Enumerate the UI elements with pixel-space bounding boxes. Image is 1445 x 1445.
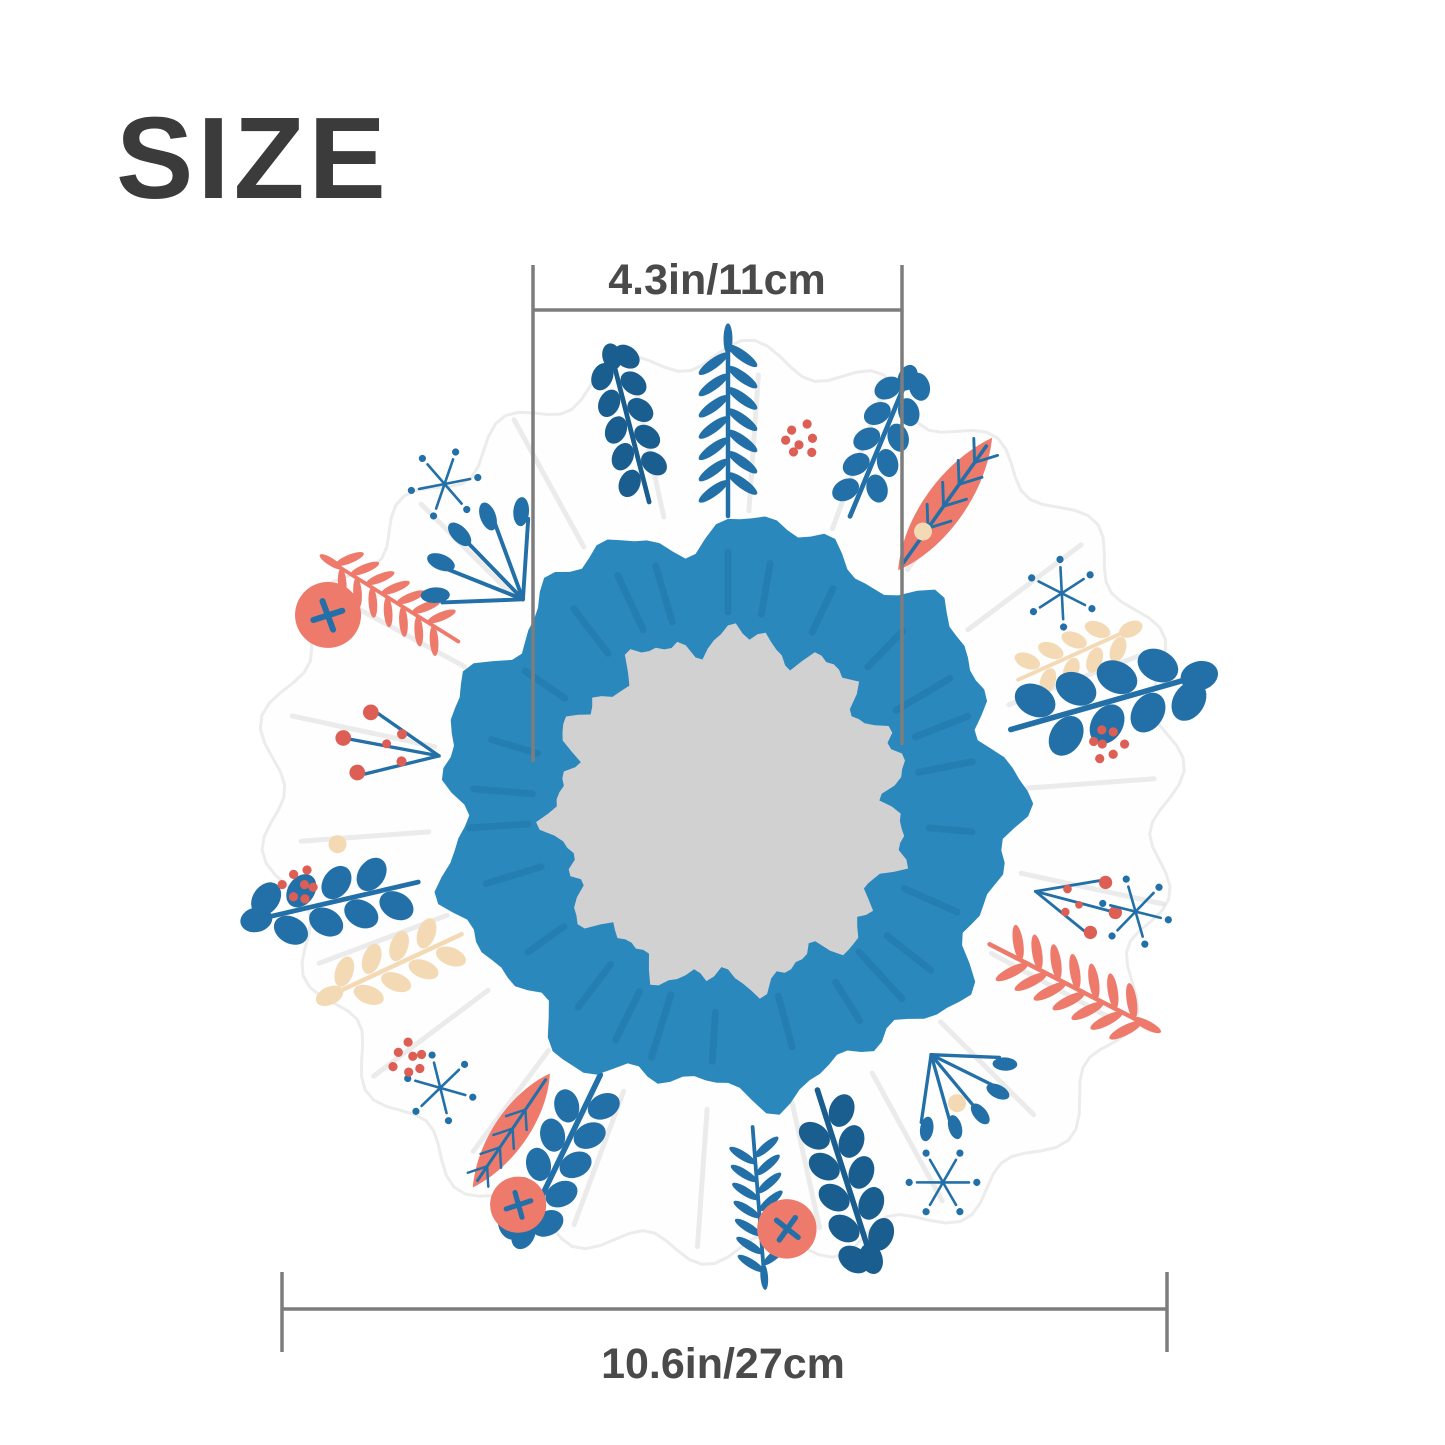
shower-cap-illustration <box>232 323 1231 1292</box>
size-diagram: 4.3in/11cm 10.6in/27cm SIZE <box>0 0 1445 1445</box>
page-title: SIZE <box>116 93 390 223</box>
size-diagram-page: 4.3in/11cm 10.6in/27cm SIZE <box>0 0 1445 1445</box>
outer-diameter-measure: 10.6in/27cm <box>282 1272 1167 1388</box>
inner-diameter-label: 4.3in/11cm <box>608 256 826 304</box>
outer-diameter-label: 10.6in/27cm <box>601 1340 845 1388</box>
